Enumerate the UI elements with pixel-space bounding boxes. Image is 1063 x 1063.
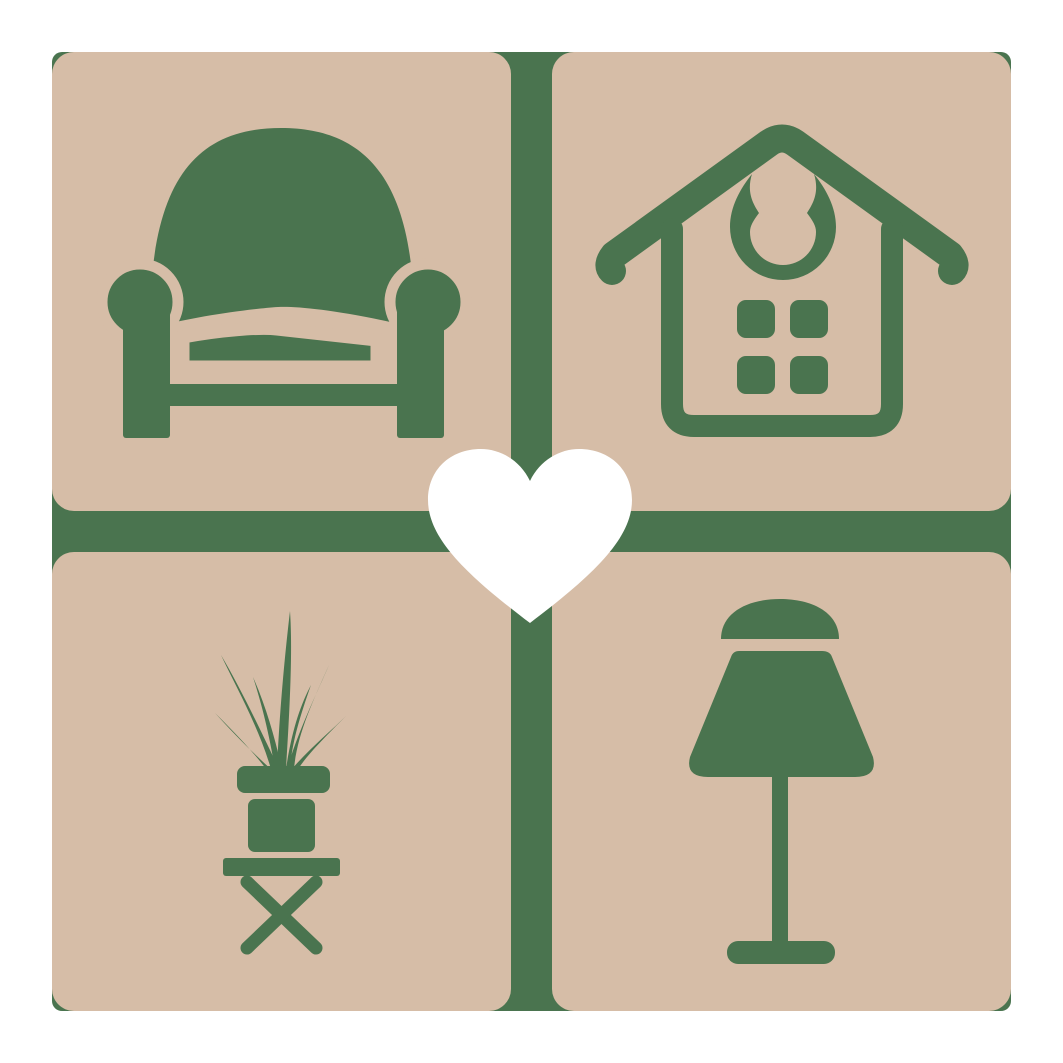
house-window [737, 300, 775, 338]
chair-back [150, 128, 414, 327]
house-window [790, 356, 828, 394]
armchair-icon [86, 124, 478, 440]
lamp-stem [772, 777, 788, 947]
potted-plant-icon [213, 607, 350, 957]
plant-leaves [215, 611, 347, 771]
table-lamp-icon [687, 599, 876, 964]
house-walls [672, 229, 892, 426]
tile-house [552, 52, 1011, 511]
stool-top [223, 858, 340, 876]
canvas: { "brand_colors": { "green": "#4a744f", … [0, 0, 1063, 1063]
chair-seat-cushion [183, 328, 377, 367]
logo [52, 52, 1011, 1011]
heart-shape [428, 449, 632, 623]
heart-icon [423, 447, 637, 625]
plant-pot-body [248, 799, 315, 852]
lamp-base [727, 941, 835, 964]
plant-pot-rim [237, 766, 330, 793]
chair-leg-left [123, 302, 170, 438]
lamp-cap [721, 599, 839, 639]
tile-armchair [52, 52, 511, 511]
chair-leg-right [397, 302, 444, 438]
house-window [737, 356, 775, 394]
house-icon [594, 117, 970, 447]
chair-front-rail [166, 384, 400, 406]
lamp-shade [689, 651, 874, 777]
house-gable-ornament [730, 174, 836, 280]
house-window [790, 300, 828, 338]
